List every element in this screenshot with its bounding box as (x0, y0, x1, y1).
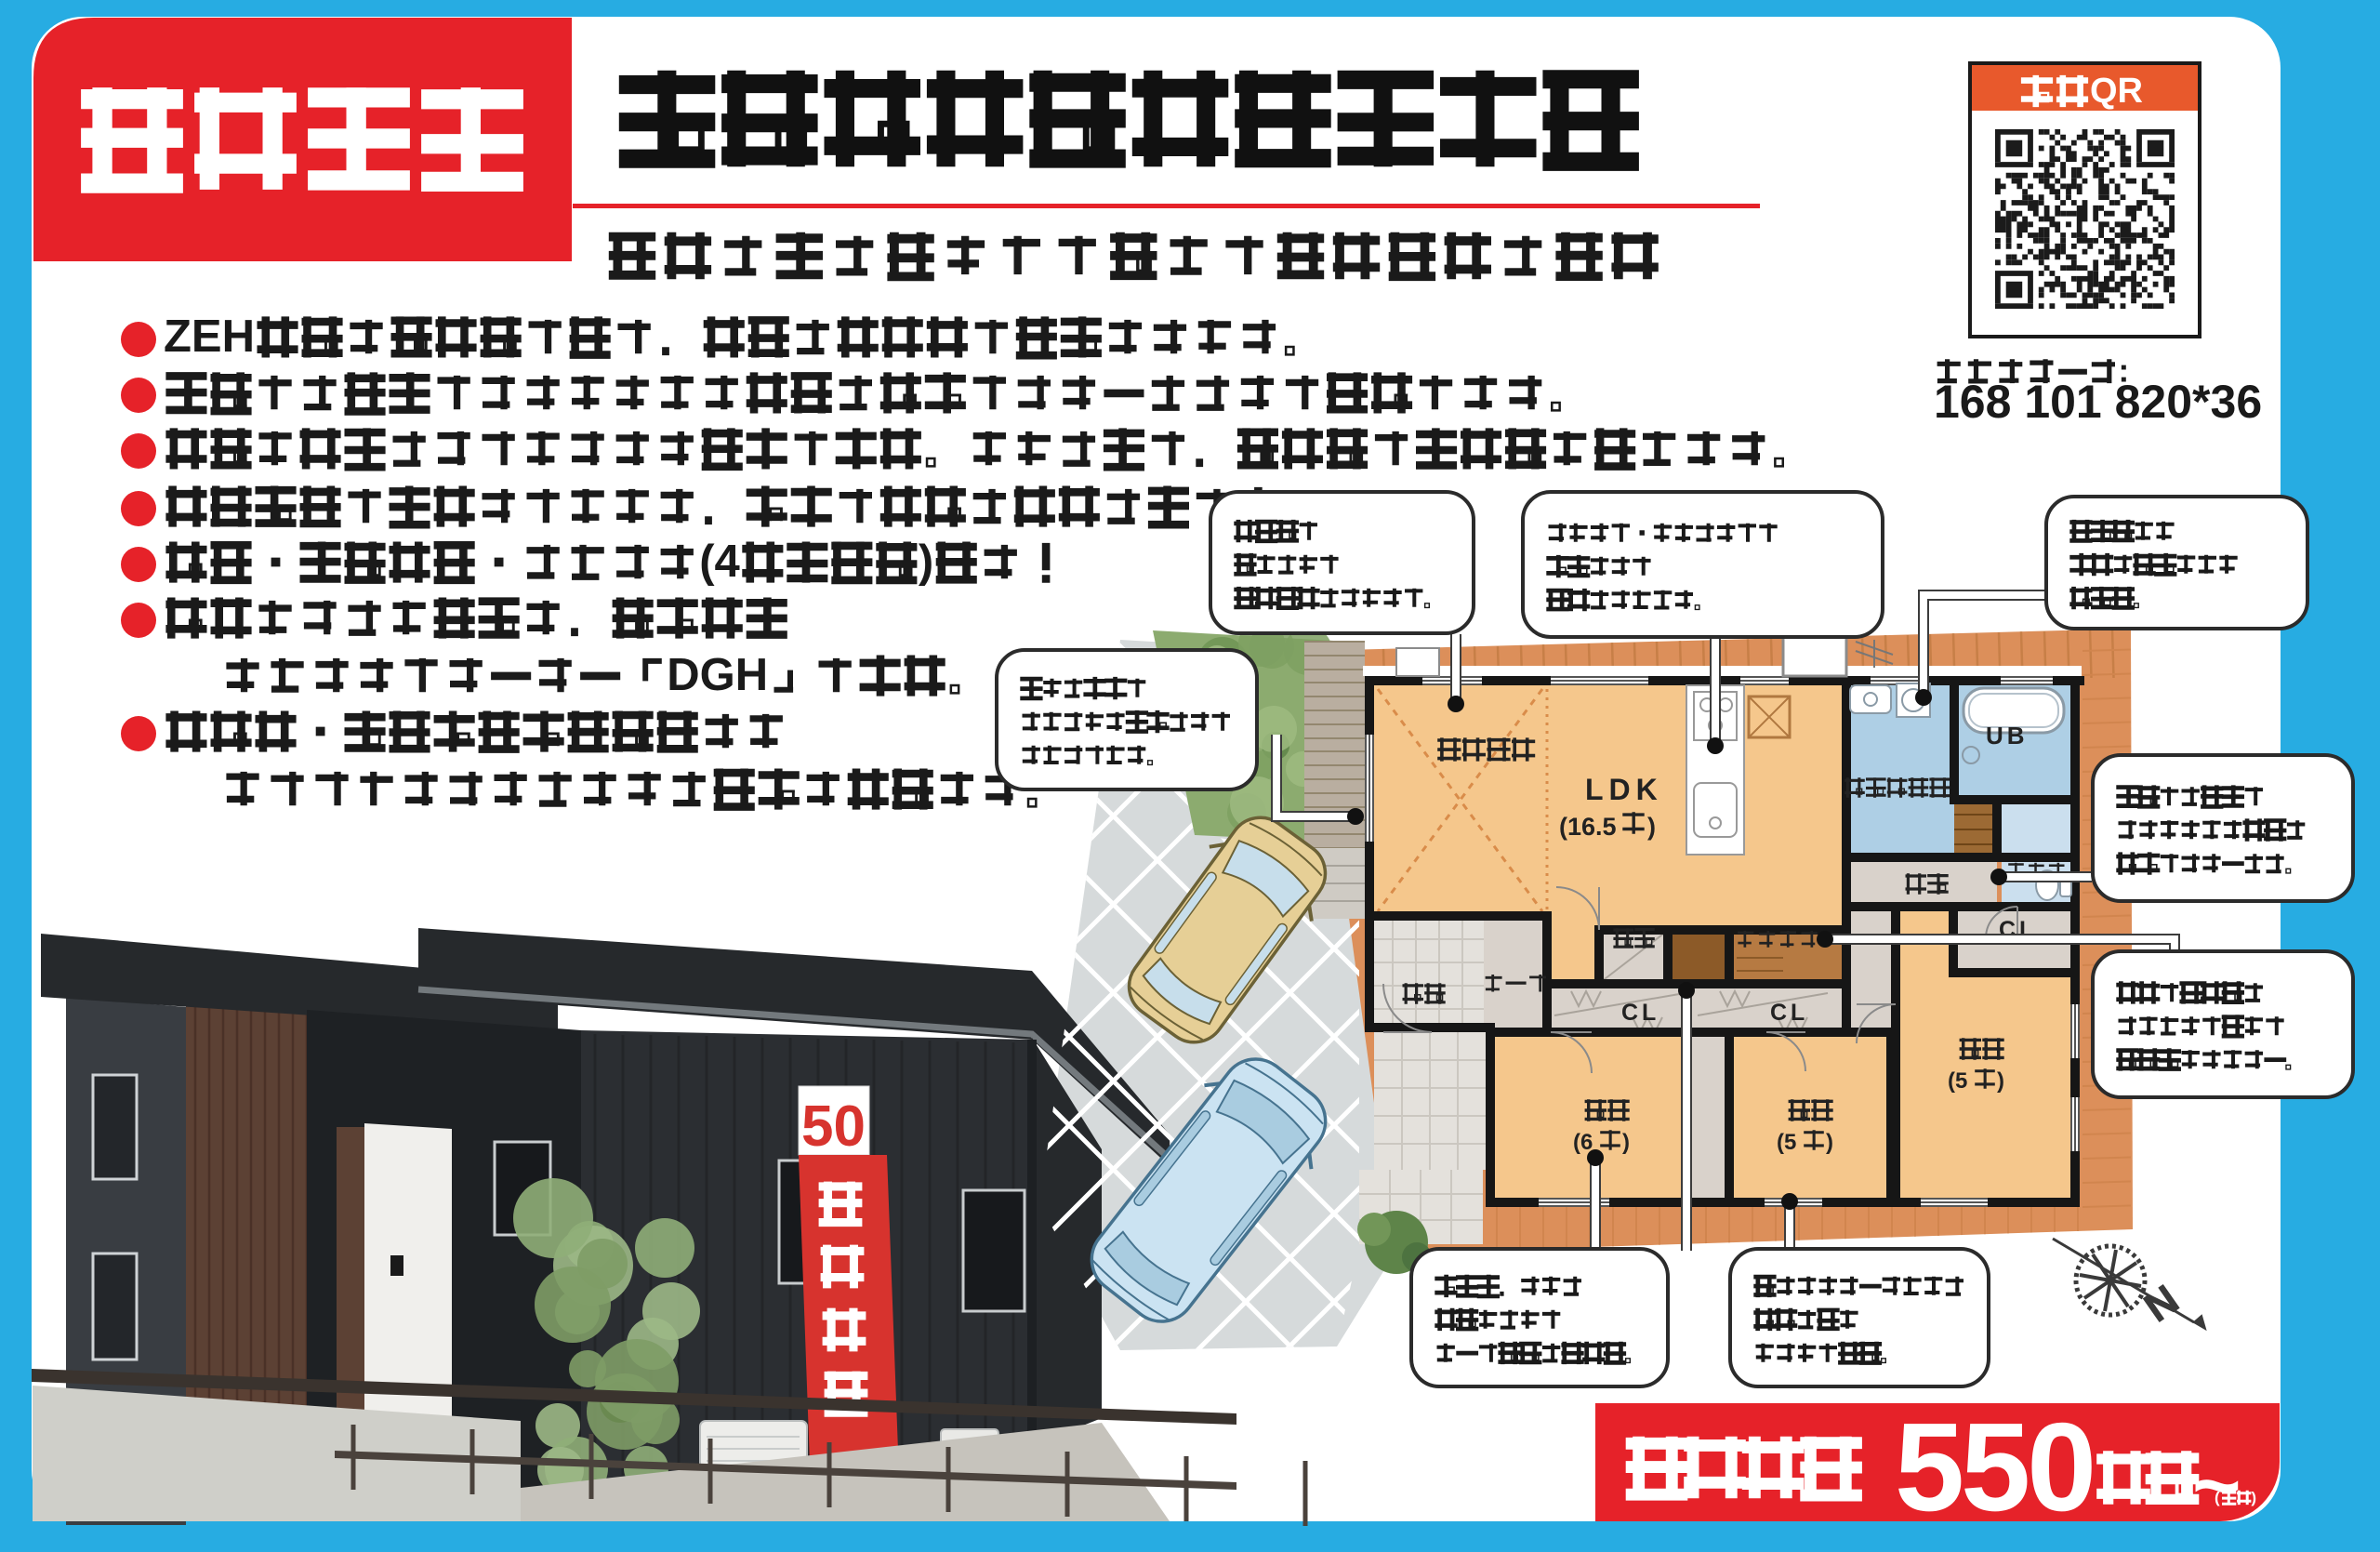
svg-text:): ) (1622, 1130, 1630, 1155)
svg-text:168 101 820*36: 168 101 820*36 (1934, 376, 2262, 428)
svg-text:): ) (2251, 1489, 2256, 1506)
svg-text:50: 50 (801, 1094, 866, 1159)
svg-text:ZEH: ZEH (164, 312, 255, 362)
svg-text:UB: UB (1986, 722, 2029, 749)
svg-text:550: 550 (1895, 1397, 2093, 1537)
svg-text:CL: CL (1621, 1000, 1659, 1026)
svg-text:(16.5: (16.5 (1559, 813, 1617, 841)
svg-text:): ) (919, 537, 933, 587)
svg-text:(6: (6 (1573, 1130, 1593, 1155)
svg-text:LDK: LDK (1585, 773, 1663, 806)
svg-text:): ) (1997, 1068, 2004, 1094)
svg-text:(5: (5 (1777, 1130, 1796, 1155)
svg-text:): ) (1647, 813, 1656, 841)
svg-text:QR: QR (2090, 72, 2143, 111)
svg-text:~: ~ (2192, 1439, 2241, 1532)
svg-text:(4: (4 (699, 537, 740, 587)
svg-text:(: ( (2215, 1489, 2220, 1506)
svg-text:DGH: DGH (667, 650, 768, 700)
svg-text:CL: CL (1770, 1000, 1808, 1026)
svg-text:(5: (5 (1948, 1068, 1967, 1094)
svg-text:): ) (1826, 1130, 1833, 1155)
